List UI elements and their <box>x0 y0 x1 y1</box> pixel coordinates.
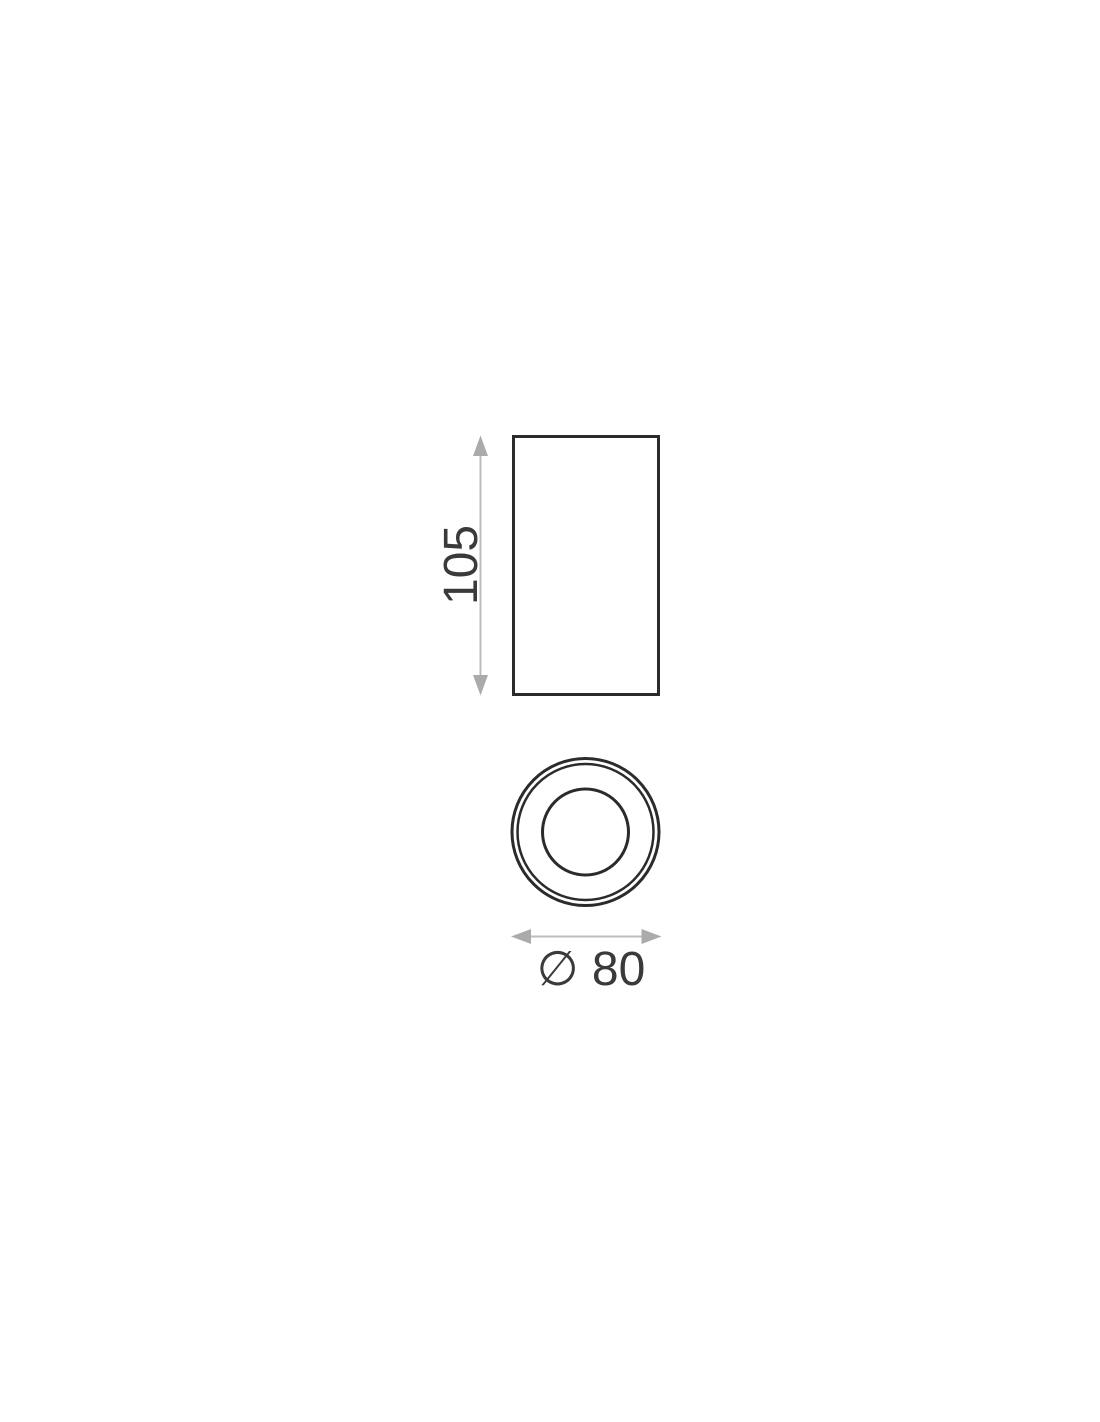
diameter-dimension-arrow-right-icon <box>642 929 662 944</box>
technical-drawing-canvas: 105 ∅ 80 <box>0 0 1100 1422</box>
diameter-dimension-label: ∅ 80 <box>537 943 646 996</box>
top-view-outer-circle <box>512 759 659 906</box>
height-dimension-label: 105 <box>435 525 488 605</box>
height-dimension-arrow-down-icon <box>473 675 488 696</box>
side-view-outline <box>514 437 659 695</box>
technical-drawing-svg: 105 ∅ 80 <box>0 0 1100 1422</box>
height-dimension-arrow-up-icon <box>473 436 488 457</box>
diameter-dimension-arrow-left-icon <box>511 929 531 944</box>
